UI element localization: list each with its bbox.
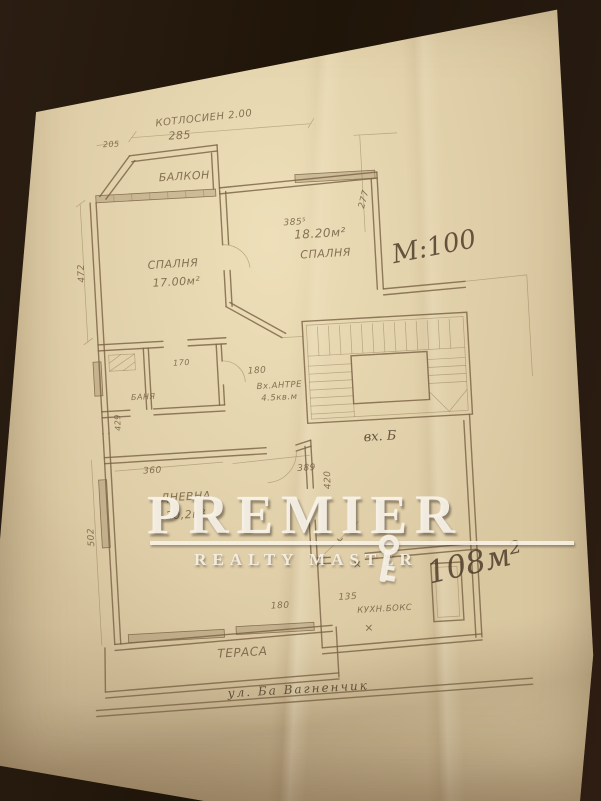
floor-plan: КОТЛОСИЕН 2.00 285 205 БАЛКОН СПАЛНЯ 17.… (54, 75, 571, 745)
dim-472: 472 (76, 264, 87, 283)
paper-sheet: КОТЛОСИЕН 2.00 285 205 БАЛКОН СПАЛНЯ 17.… (0, 0, 601, 801)
note-street: ул. Ба Вагненчик (226, 678, 369, 700)
room-label-bedroom-left: СПАЛНЯ (147, 256, 198, 272)
room-area-bedroom-right: 18.20м² (294, 225, 346, 242)
note-scale: М:100 (388, 224, 478, 270)
watermark-divider-line (150, 541, 574, 545)
note-top: КОТЛОСИЕН 2.00 (155, 108, 253, 129)
room-label-bath: БАНЯ (131, 392, 156, 402)
dim-502: 502 (86, 528, 97, 547)
watermark-tagline: REALTY MASTER (150, 550, 462, 570)
dim-180-hall: 180 (247, 366, 266, 377)
dim-360: 360 (143, 466, 162, 477)
room-area-bedroom-left: 17.00м² (152, 274, 200, 290)
dim-389: 389 (297, 463, 316, 474)
dim-135: 135 (338, 592, 357, 603)
dim-285: 285 (168, 128, 191, 142)
dim-429: 429 (113, 414, 123, 431)
dim-277: 277 (357, 189, 371, 210)
photo-background: КОТЛОСИЕН 2.00 285 205 БАЛКОН СПАЛНЯ 17.… (0, 0, 601, 801)
dim-170: 170 (173, 358, 190, 368)
room-label-bedroom-right: СПАЛНЯ (300, 246, 351, 262)
room-area-entry-hall: 4.5кв.м (261, 392, 298, 404)
watermark-brand: PREMIER (145, 483, 465, 546)
walls-layer (65, 126, 550, 716)
room-label-terrace: ТЕРАСА (217, 644, 268, 661)
floor-plan-tilt: КОТЛОСИЕН 2.00 285 205 БАЛКОН СПАЛНЯ 17.… (54, 75, 571, 745)
note-entrance: вх. Б (363, 428, 397, 445)
dim-205: 205 (103, 139, 120, 149)
room-label-entry-hall: Вх.АНТРЕ (256, 380, 302, 393)
window-x-mark-3: × (364, 621, 374, 635)
room-label-balcony: БАЛКОН (158, 168, 210, 184)
dim-180-kitchen: 180 (271, 601, 290, 612)
room-label-kitchen: КУХН.БОКС (357, 603, 413, 616)
